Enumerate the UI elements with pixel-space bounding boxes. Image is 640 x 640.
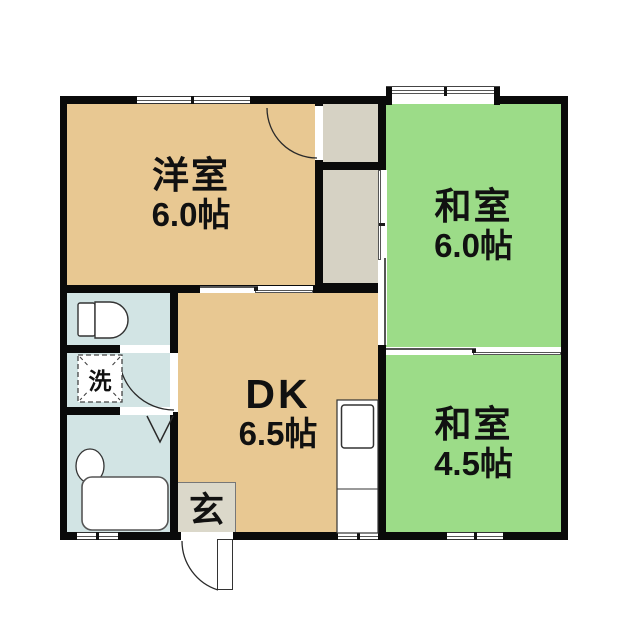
closet-lower [323,170,378,283]
closet-upper [323,104,378,162]
room-western-6-size: 6.0帖 [152,197,231,234]
room-japanese-6-size: 6.0帖 [434,228,513,265]
washroom [67,353,170,407]
room-japanese-45-label: 和室 [435,404,513,445]
room-western-6: 洋室 6.0帖 [67,104,315,285]
wall [561,96,568,540]
window-icon [338,532,378,540]
floor-plan: 洋室 6.0帖 和室 6.0帖 和室 4.5帖 DK 6.5帖 [0,0,640,640]
bathroom [67,415,170,532]
door-opening [170,353,178,412]
room-japanese-6: 和室 6.0帖 [386,104,561,347]
room-japanese-6-label: 和室 [435,186,513,227]
door-opening [315,106,323,160]
window-icon [77,532,118,540]
bay-window-icon [386,86,500,104]
door-opening [120,407,173,415]
wall [60,96,67,540]
toilet-room [67,293,170,345]
sliding-door-icon [386,348,561,355]
room-dk-label: DK [245,373,310,416]
room-japanese-45: 和室 4.5帖 [386,355,561,532]
entry-door-leaf [217,539,233,590]
window-icon [137,96,250,104]
door-swing-icon [182,541,218,590]
room-japanese-45-size: 4.5帖 [434,446,513,483]
sliding-door-icon [378,170,387,345]
laundry-label: 洗 [86,366,114,392]
sliding-door-icon [200,286,313,293]
door-opening [120,345,170,353]
room-dk-size: 6.5帖 [239,416,318,453]
wall [315,283,386,293]
window-icon [447,532,503,540]
entrance-label: 玄 [178,483,235,532]
room-western-6-label: 洋室 [152,155,230,196]
wall [315,162,386,170]
